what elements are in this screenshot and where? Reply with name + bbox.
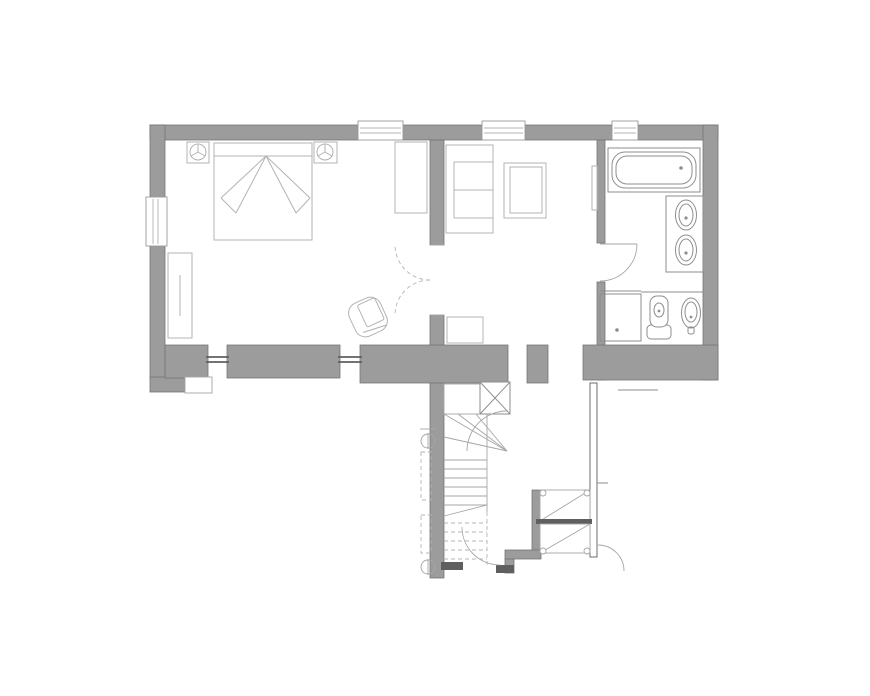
bidet — [682, 298, 701, 334]
stair-threshold-bar — [441, 562, 463, 570]
living-room-furniture — [446, 145, 597, 343]
washbasin-top — [676, 200, 697, 230]
ext-stair-foot-bar — [496, 565, 514, 573]
wall-top-3 — [525, 125, 612, 140]
shaft-x-box — [480, 382, 510, 414]
shower — [600, 291, 641, 341]
bedroom-furniture — [168, 142, 427, 340]
window-south-bedroom-2 — [338, 357, 362, 362]
wall-ext-stair-step2 — [505, 550, 541, 559]
window-top-bedroom — [358, 121, 403, 140]
wall-left-upper — [150, 125, 165, 198]
floor-plan-drawing — [0, 0, 870, 696]
south-west-niche — [185, 377, 212, 393]
window-top-bathroom — [612, 121, 638, 140]
straight-steps — [444, 414, 487, 516]
wardrobe — [168, 253, 192, 338]
bathroom-door — [600, 244, 637, 281]
tall-cabinet — [395, 142, 427, 213]
ext-stair-divider — [536, 519, 592, 524]
wall-south-bathroom — [583, 345, 718, 380]
wall-top-2 — [403, 125, 482, 140]
wall-bathroom-west-upper — [597, 140, 605, 243]
side-table — [447, 317, 483, 343]
nightstand-left — [187, 142, 209, 163]
double-door-bedroom-living — [395, 245, 444, 315]
wall-left-foot — [150, 377, 185, 392]
wall-south-1 — [165, 345, 208, 378]
wall-right — [703, 125, 718, 380]
nightstand-right — [314, 142, 337, 163]
wall-south-2 — [227, 345, 340, 378]
wall-left-lower — [150, 245, 165, 378]
garden-door-swing — [598, 545, 624, 571]
winder-steps — [444, 411, 507, 451]
toilet — [647, 296, 671, 339]
ext-stair-flight-upper — [540, 490, 590, 521]
walls — [150, 125, 718, 578]
window-south-bedroom-1 — [206, 357, 229, 362]
lounge-chair — [504, 163, 546, 218]
bathtub — [608, 148, 700, 192]
double-bed — [214, 143, 312, 240]
sofa — [446, 145, 493, 233]
ext-stair-flight-lower — [540, 524, 590, 553]
window-top-living — [482, 121, 525, 140]
washbasin-bottom — [676, 235, 697, 265]
external-stair — [496, 383, 608, 573]
radiator — [592, 166, 597, 210]
window-left-bedroom — [146, 197, 167, 246]
wall-partition-upper — [430, 140, 444, 245]
shower-drain — [615, 328, 619, 332]
thin-garden-wall — [590, 383, 597, 557]
windows — [146, 121, 638, 362]
tub-armchair — [345, 294, 391, 341]
floor-plan-canvas — [0, 0, 870, 696]
wall-south-4 — [527, 345, 548, 383]
wall-top-1 — [150, 125, 358, 140]
bathtub-drain — [679, 166, 683, 170]
wall-south-3 — [360, 345, 508, 383]
